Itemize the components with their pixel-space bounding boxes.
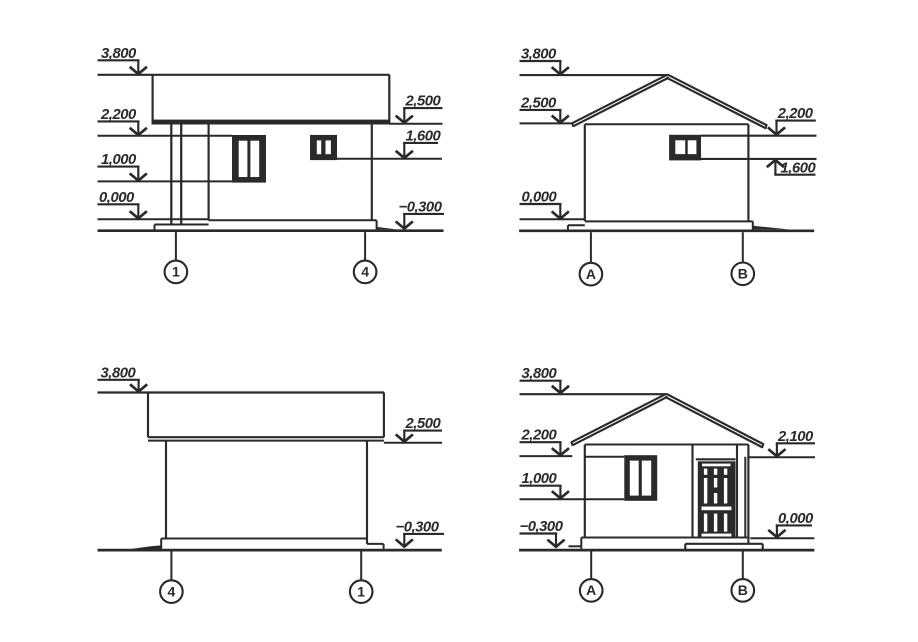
svg-text:B: B: [738, 266, 748, 282]
svg-text:1: 1: [357, 583, 365, 599]
svg-text:B: B: [738, 582, 748, 598]
svg-text:4: 4: [361, 264, 369, 280]
svg-text:1: 1: [172, 264, 180, 280]
svg-text:4: 4: [168, 583, 176, 599]
svg-text:A: A: [586, 266, 596, 282]
svg-text:A: A: [586, 582, 596, 598]
